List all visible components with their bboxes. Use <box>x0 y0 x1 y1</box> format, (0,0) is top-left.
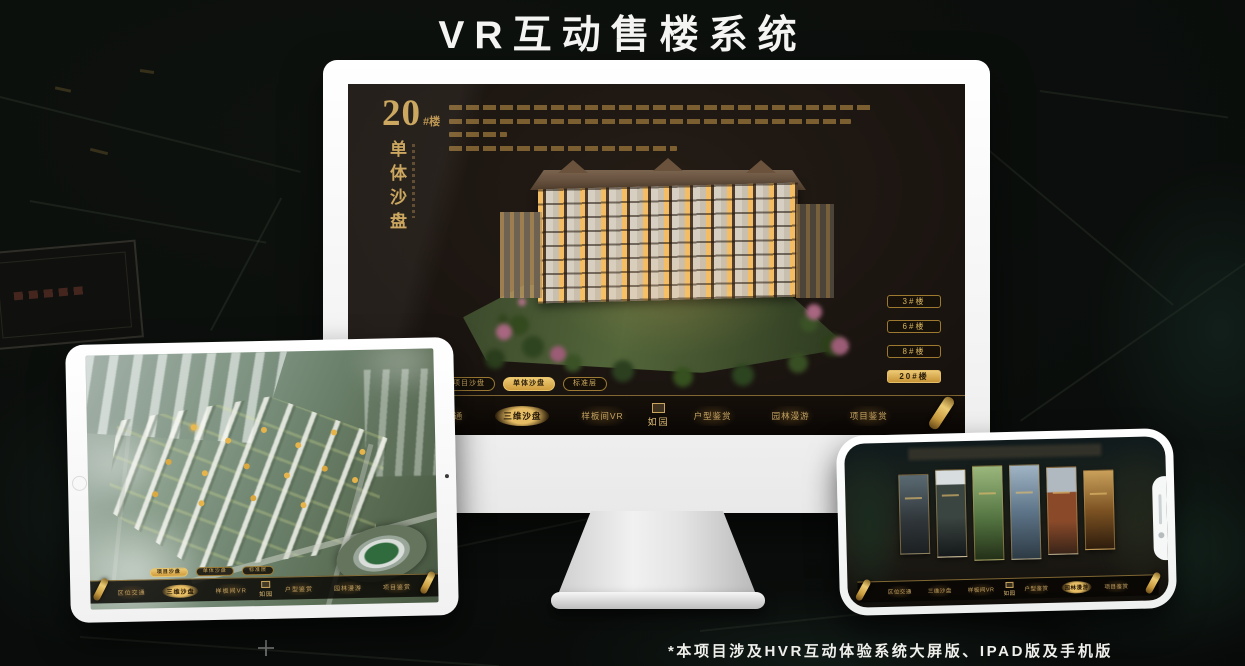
phone-screen: 区位交通三维沙盘样板间VR 如园 户型鉴赏园林漫游项目鉴赏 <box>844 436 1169 608</box>
nav-item[interactable]: 区位交通 <box>885 585 915 598</box>
nav-item[interactable]: 户型鉴赏 <box>1021 582 1051 595</box>
sparkle-icon <box>258 640 274 656</box>
sandbox-mode-tabs: 项目沙盘单体沙盘标准层 <box>150 565 274 577</box>
background-plaque <box>0 240 144 351</box>
scene-card[interactable] <box>898 474 930 555</box>
phone-camera-icon <box>1158 532 1164 538</box>
map-road-line <box>0 96 301 173</box>
nav-items-right: 户型鉴赏园林漫游项目鉴赏 <box>281 579 415 595</box>
phone-notch <box>1152 476 1169 560</box>
nav-items-left: 区位交通三维沙盘样板间VR <box>885 583 998 598</box>
footnote-text: *本项目涉及HVR互动体验系统大屏版、IPAD版及手机版 <box>668 640 1113 661</box>
tablet-home-button[interactable] <box>72 476 87 491</box>
map-label-speck <box>140 69 154 74</box>
monitor-stand <box>557 511 757 597</box>
tablet-device: 项目沙盘单体沙盘标准层 区位交通三维沙盘样板间VR 如园 户型鉴赏园林漫游项目鉴… <box>65 337 459 623</box>
nav-item[interactable]: 园林漫游 <box>1061 581 1091 594</box>
nav-item[interactable]: 项目鉴赏 <box>1101 580 1131 593</box>
nav-item[interactable]: 三维沙盘 <box>925 584 955 597</box>
nav-items-right: 户型鉴赏园林漫游项目鉴赏 <box>1021 580 1131 595</box>
promo-canvas: VR互动售楼系统 20#楼 单体沙盘 <box>0 0 1245 666</box>
map-road-line <box>1040 90 1228 118</box>
nav-item[interactable]: 区位交通 <box>113 585 149 599</box>
nav-item[interactable]: 三维沙盘 <box>162 584 198 598</box>
nav-item[interactable]: 户型鉴赏 <box>281 581 317 595</box>
cloud-fog <box>349 348 438 395</box>
interior-ceiling-beam <box>908 444 1101 461</box>
page-title: VR互动售楼系统 <box>0 4 1245 60</box>
scene-card[interactable] <box>972 465 1004 561</box>
tablet-camera-icon <box>445 474 449 478</box>
map-road-line <box>80 636 499 666</box>
phone-speaker-icon <box>1158 494 1162 524</box>
mode-tab[interactable]: 标准层 <box>242 565 274 575</box>
map-road-line <box>30 200 267 244</box>
tablet-screen: 项目沙盘单体沙盘标准层 区位交通三维沙盘样板间VR 如园 户型鉴赏园林漫游项目鉴… <box>85 348 438 609</box>
map-road-line <box>210 198 282 331</box>
scene-card[interactable] <box>1083 469 1115 550</box>
brand-seal-icon <box>261 580 270 587</box>
brand-logo[interactable]: 如园 <box>259 580 273 597</box>
nav-item[interactable]: 样板间VR <box>211 583 251 597</box>
mode-tab[interactable]: 项目沙盘 <box>150 567 188 577</box>
scene-card[interactable] <box>1009 464 1041 560</box>
phone-device: 区位交通三维沙盘样板间VR 如园 户型鉴赏园林漫游项目鉴赏 <box>836 428 1177 616</box>
nav-item[interactable]: 样板间VR <box>965 583 998 596</box>
monitor-stand-base <box>551 592 765 609</box>
nav-items-left: 区位交通三维沙盘样板间VR <box>113 583 251 599</box>
nav-item[interactable]: 园林漫游 <box>330 580 366 594</box>
brand-seal-icon <box>1005 581 1013 587</box>
brand-logo[interactable]: 如园 <box>1003 581 1015 596</box>
map-label-speck <box>90 148 108 155</box>
scene-gallery <box>898 459 1115 564</box>
brand-logo-text: 如园 <box>1003 588 1015 596</box>
nav-item[interactable]: 项目鉴赏 <box>379 579 415 593</box>
scene-card[interactable] <box>935 469 967 558</box>
scene-card[interactable] <box>1046 466 1078 555</box>
brand-logo-text: 如园 <box>259 588 273 597</box>
map-label-speck <box>55 86 71 92</box>
mode-tab[interactable]: 单体沙盘 <box>196 566 234 576</box>
